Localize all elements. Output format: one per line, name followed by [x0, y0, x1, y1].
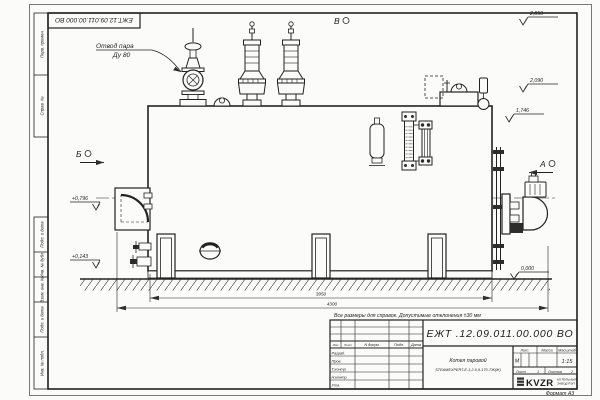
view-label-right: А — [529, 159, 555, 175]
revision-col-header: Дата — [410, 343, 421, 347]
scale-label: Масштаб — [558, 349, 577, 353]
sheet-label: Лист — [515, 370, 526, 374]
sheet-value: 1 — [537, 370, 539, 374]
elevation-value: +0,796 — [72, 196, 88, 202]
elevation-2090: 2,090 — [520, 78, 559, 92]
boiler-side-view — [115, 22, 548, 278]
elevation-value: 2,850 — [529, 11, 543, 17]
sign-row-label: Н.контр. — [332, 376, 348, 380]
support — [312, 234, 330, 278]
elevation-0000: 0,000 — [511, 266, 550, 279]
boiler-assembly-drawing: Перв. примен. Справ. № Подп. и дата Инв.… — [0, 0, 600, 400]
svg-text:А: А — [539, 159, 546, 169]
lit-label: Лит. — [520, 349, 530, 353]
burner-motor — [525, 172, 546, 197]
margin-cell-label: Справ. № — [40, 96, 45, 115]
rear-top-fittings — [425, 76, 489, 110]
manhole — [199, 243, 221, 259]
revision-col-header: Изм — [333, 343, 340, 347]
elevation-1746: 1,746 — [506, 108, 545, 122]
margin-column: Перв. примен. Справ. № Подп. и дата Инв.… — [34, 13, 48, 389]
logo-text: KVZR — [526, 378, 553, 389]
sign-row-label: Т.контр. — [332, 368, 347, 372]
ground-hatch — [80, 279, 552, 291]
elevation-plus0796: +0,796 — [70, 196, 100, 210]
reference-note: Все размеры для справок. Допустимые откл… — [334, 313, 481, 319]
view-label-top: В — [334, 16, 349, 26]
svg-text:Б: Б — [76, 149, 82, 159]
view-label-left: Б — [76, 149, 104, 165]
front-door — [115, 188, 152, 230]
scale-value: 1:15 — [562, 359, 574, 365]
margin-cell-label: Подп. и дата — [40, 306, 45, 333]
kvzr-logo: KVZR КОТЕЛЬНЫЙ ЗАВОД РЭП — [517, 378, 577, 390]
margin-cell-label: Инв. № подл. — [40, 350, 45, 376]
revision-col-header: Лист — [343, 343, 352, 347]
stamp-doc-number: ЕЖТ .12.09.011.00.000 ВО — [427, 328, 574, 340]
product-name: Котел паровой — [449, 357, 486, 364]
steam-outlet-label: Отвод пара — [96, 42, 134, 50]
pressure-gauge — [478, 78, 489, 110]
mass-label: Масса — [541, 349, 552, 353]
revision-col-header: N докум. — [364, 343, 379, 347]
steam-outlet-valve — [180, 28, 206, 106]
sheets-value: 2 — [570, 370, 574, 374]
sheets-label: Листов — [547, 370, 562, 374]
revision-col-header: Подп. — [394, 343, 404, 347]
sign-row-label: Пров. — [332, 360, 342, 364]
burner — [502, 172, 548, 234]
elevation-value: 1,746 — [516, 108, 529, 114]
dimension-value: 4300 — [327, 302, 338, 307]
doc-number-box: ЕЖТ.12.09.011.00.000 ВО — [48, 13, 140, 28]
svg-text:В: В — [334, 16, 340, 26]
margin-cell-label: Взам. инв. № — [40, 276, 45, 302]
margin-cell-label: Подп. и дата — [40, 221, 45, 248]
margin-cell-label: Инв. № дубл. — [40, 252, 45, 278]
support — [428, 234, 446, 278]
lifting-lug — [214, 98, 230, 106]
doc-number-inverted: ЕЖТ.12.09.011.00.000 ВО — [55, 16, 133, 23]
safety-valve-2 — [278, 22, 305, 106]
elevation-value: 0,000 — [521, 266, 534, 272]
title-block: Изм Лист N докум. Подп. Дата Разраб. Про… — [330, 320, 577, 389]
steam-outlet-label: Ду 80 — [112, 52, 131, 59]
steam-outlet-callout: Отвод пара Ду 80 — [96, 42, 181, 72]
elevation-plus0143: +0,143 — [70, 254, 100, 268]
elevation-value: 2,090 — [529, 78, 543, 84]
sign-row-label: Разраб. — [332, 352, 346, 356]
margin-cell-label: Перв. примен. — [40, 30, 45, 58]
dimension-value: 3950 — [316, 292, 327, 297]
elevation-value: +0,143 — [72, 254, 88, 260]
drawing-sheet: Перв. примен. Справ. № Подп. и дата Инв.… — [0, 0, 600, 400]
lit-value: М — [515, 359, 520, 365]
logo-subtext: ЗАВОД РЭП — [557, 382, 576, 386]
product-type: STEAMEXPERT-Е-1,2-0,9-170-ТЖ(Ж) — [435, 368, 501, 372]
support — [157, 234, 175, 278]
sign-row-label: Утв. — [332, 384, 341, 388]
format-label: Формат А3 — [546, 391, 574, 397]
safety-valve-1 — [239, 22, 266, 106]
